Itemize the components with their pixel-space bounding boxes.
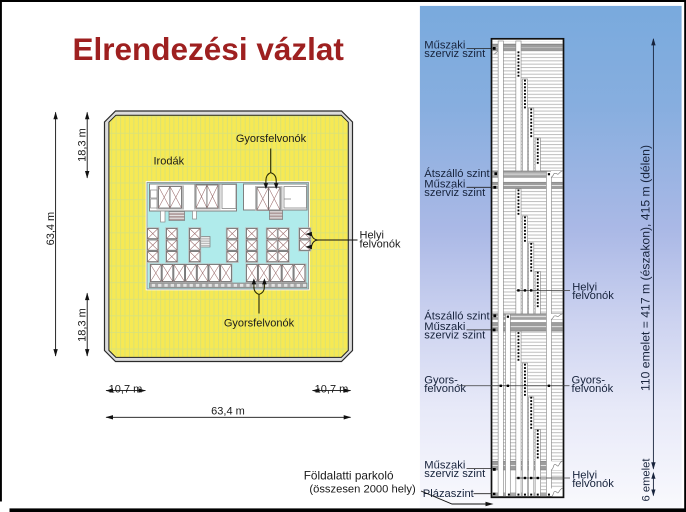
- svg-text:felvonók: felvonók: [572, 478, 614, 490]
- svg-text:10,7 m: 10,7 m: [109, 384, 143, 396]
- svg-text:szerviz szint: szerviz szint: [424, 48, 486, 60]
- svg-text:szerviz szint: szerviz szint: [424, 468, 486, 480]
- svg-text:110 emelet = 417 m (északon),: 110 emelet = 417 m (északon), 415 m (dél…: [639, 145, 653, 391]
- svg-text:18,3 m: 18,3 m: [77, 128, 89, 162]
- svg-text:Gyorsfelvonók: Gyorsfelvonók: [224, 317, 295, 329]
- svg-text:10,7 m: 10,7 m: [315, 384, 349, 396]
- svg-text:63,4 m: 63,4 m: [45, 212, 57, 246]
- svg-text:Irodák: Irodák: [154, 156, 185, 168]
- svg-text:felvonók: felvonók: [572, 290, 614, 302]
- svg-text:szerviz szint: szerviz szint: [424, 330, 486, 342]
- svg-text:felvonók: felvonók: [424, 383, 466, 395]
- svg-text:felvonók: felvonók: [572, 383, 614, 395]
- svg-text:(összesen 2000 hely): (összesen 2000 hely): [309, 483, 416, 495]
- svg-text:Elrendezési vázlat: Elrendezési vázlat: [73, 31, 345, 67]
- svg-text:Földalatti parkoló: Földalatti parkoló: [304, 468, 394, 482]
- svg-text:Gyorsfelvonók: Gyorsfelvonók: [236, 133, 307, 145]
- svg-text:63,4 m: 63,4 m: [211, 406, 245, 418]
- svg-text:felvonók: felvonók: [360, 239, 401, 251]
- svg-text:szerviz szint: szerviz szint: [424, 187, 486, 199]
- svg-text:Plázaszint: Plázaszint: [423, 488, 475, 500]
- svg-text:18,3 m: 18,3 m: [77, 308, 89, 342]
- svg-text:6 emelet: 6 emelet: [641, 458, 653, 502]
